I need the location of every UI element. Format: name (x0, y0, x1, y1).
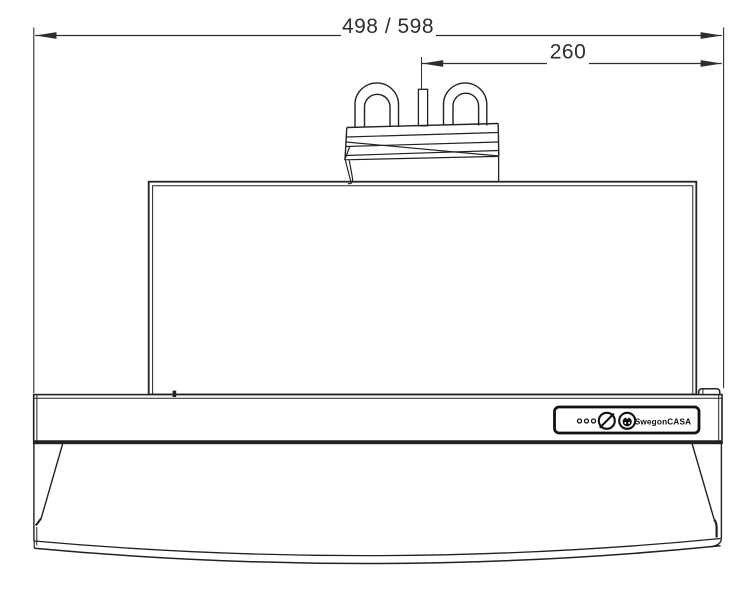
cord-loop-right-outer (444, 83, 487, 126)
dim1-arrow-right (701, 32, 722, 39)
dim2-arrow-right (701, 60, 722, 67)
led-indicator (578, 419, 582, 423)
hood-band-joint-tick (173, 391, 177, 397)
hood-technical-drawing: SwegonCASA 498 / 598 260 (0, 0, 755, 612)
cord-wrap-right-edge (498, 124, 499, 157)
canopy-right-elbow (714, 520, 716, 538)
duct-outline (149, 182, 697, 395)
dim1-arrow-left (35, 32, 56, 39)
cord-wrap-line-3 (345, 151, 499, 156)
mounting-tab-outline (699, 389, 720, 395)
duct-body (149, 182, 697, 395)
dim1-label: 498 / 598 (342, 15, 434, 38)
cord-loop-left-outer (355, 83, 399, 127)
dimension-right-offset: 260 (422, 41, 722, 90)
dim2-label: 260 (550, 41, 587, 64)
cord-wrap-bottom-edge (345, 156, 499, 159)
light-knob-dot-right (628, 422, 630, 424)
power-cord-coil (345, 83, 499, 184)
mounting-tab (699, 389, 720, 395)
cord-plug-end (418, 89, 427, 126)
fan-speed-knob-icon (599, 413, 615, 429)
canopy-right-slant (692, 444, 714, 520)
cord-loop-left-inner (365, 94, 391, 127)
light-knob-dot-left (624, 422, 626, 424)
light-knob-icon (619, 413, 635, 429)
dim2-arrow-left (422, 60, 443, 67)
cord-wrap-line-1 (346, 133, 498, 138)
led-indicator (592, 419, 596, 423)
hood-canopy (34, 443, 722, 563)
led-indicator (585, 419, 589, 423)
canopy-left-slant (41, 444, 62, 518)
cord-end-right (349, 161, 352, 177)
brand-label: SwegonCASA (635, 417, 692, 426)
visor-upper-curve (34, 539, 721, 556)
light-knob-bulb-base (626, 417, 628, 419)
cord-loop-right-inner (453, 93, 479, 125)
canopy-left-elbow (36, 518, 41, 525)
drawing-canvas: SwegonCASA 498 / 598 260 (0, 0, 755, 612)
control-panel: SwegonCASA (555, 407, 700, 433)
